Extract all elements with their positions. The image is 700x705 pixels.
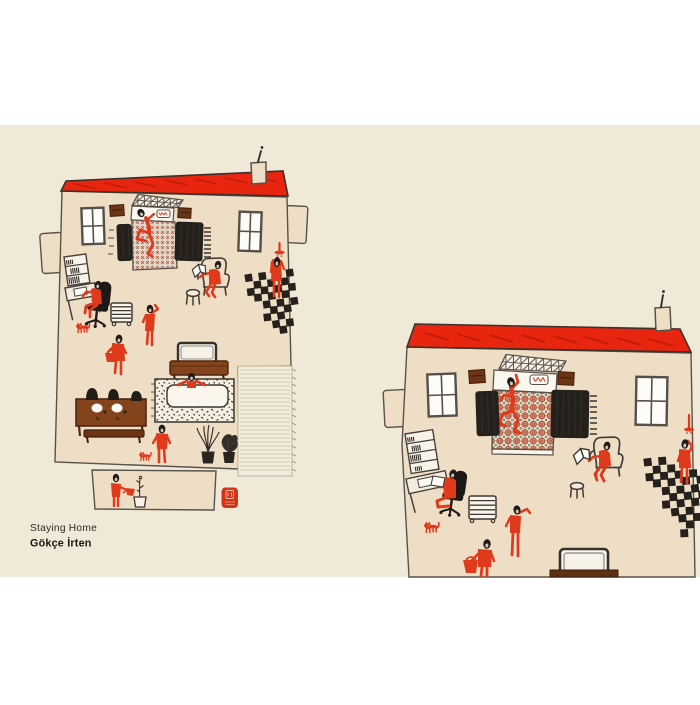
svg-text:Staying Home: Staying Home [30,523,97,534]
svg-text:Gökçe İrten: Gökçe İrten [30,537,92,550]
